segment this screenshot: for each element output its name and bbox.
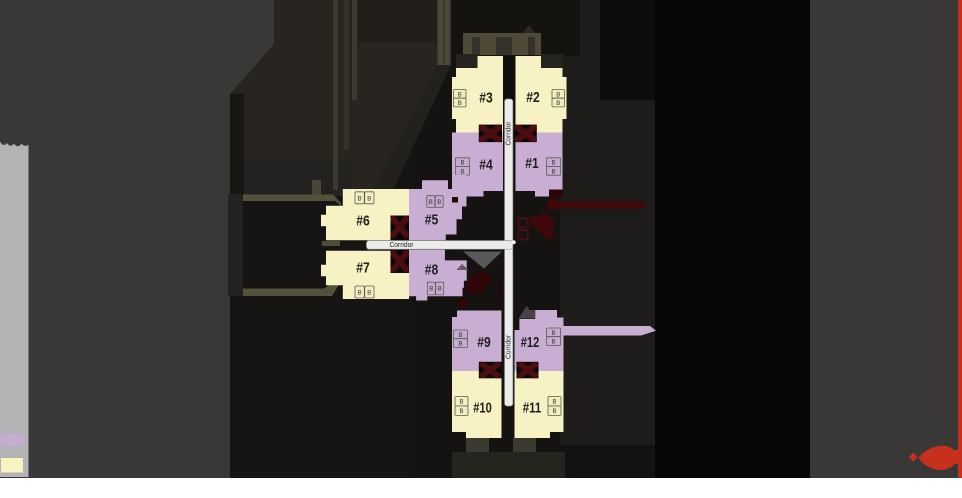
svg-text:B: B [556,92,560,98]
svg-text:B: B [551,340,555,346]
svg-text:B: B [429,200,433,206]
svg-text:B: B [556,101,560,107]
svg-text:B: B [358,291,362,297]
svg-text:Corridor: Corridor [390,242,415,249]
svg-text:#6: #6 [356,214,370,230]
svg-text:B: B [367,291,371,297]
svg-text:#10: #10 [473,401,492,417]
svg-text:B: B [459,409,463,415]
svg-text:#12: #12 [521,335,540,351]
svg-text:#11: #11 [523,401,542,417]
svg-text:B: B [429,287,433,293]
svg-text:B: B [458,92,462,98]
svg-text:B: B [551,161,555,167]
svg-text:Corridor: Corridor [506,121,513,146]
svg-text:B: B [367,196,371,202]
svg-text:B: B [552,409,556,415]
svg-text:B: B [458,101,462,107]
svg-text:#3: #3 [479,91,493,107]
svg-text:#5: #5 [425,213,439,229]
svg-text:B: B [459,400,463,406]
svg-text:#7: #7 [356,261,370,277]
svg-text:#4: #4 [479,158,493,174]
svg-text:B: B [552,400,556,406]
svg-text:B: B [551,169,555,175]
svg-text:B: B [458,333,462,339]
svg-text:#1: #1 [525,156,539,172]
svg-text:B: B [358,196,362,202]
svg-text:Corridor: Corridor [506,334,513,359]
svg-text:B: B [460,169,464,175]
svg-text:#2: #2 [526,90,540,106]
svg-text:B: B [437,200,441,206]
svg-text:#9: #9 [477,335,491,351]
svg-text:#8: #8 [425,263,439,279]
svg-text:B: B [458,342,462,348]
svg-text:B: B [551,331,555,337]
svg-text:B: B [438,287,442,293]
svg-text:B: B [460,161,464,167]
